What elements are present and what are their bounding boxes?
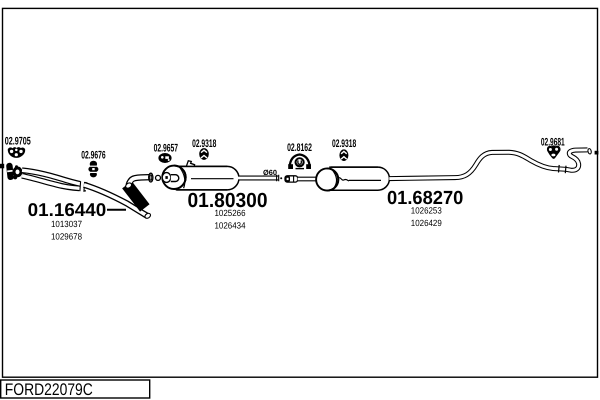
svg-text:02.9318: 02.9318 — [332, 138, 356, 150]
svg-text:1013037: 1013037 — [51, 219, 82, 229]
svg-text:1025266: 1025266 — [215, 208, 246, 218]
svg-text:02.9657: 02.9657 — [154, 143, 178, 155]
svg-text:02.9705: 02.9705 — [5, 136, 31, 148]
svg-text:1026434: 1026434 — [215, 221, 246, 231]
svg-text:01.16440: 01.16440 — [28, 199, 107, 220]
svg-text:1026253: 1026253 — [411, 205, 442, 215]
svg-text:1029678: 1029678 — [51, 232, 82, 242]
svg-text:02.9676: 02.9676 — [81, 150, 105, 162]
svg-text:02.8162: 02.8162 — [287, 142, 312, 154]
svg-text:1026429: 1026429 — [411, 218, 442, 228]
svg-text:Ø60: Ø60 — [263, 168, 277, 177]
svg-text:FORD22079C: FORD22079C — [5, 380, 93, 399]
